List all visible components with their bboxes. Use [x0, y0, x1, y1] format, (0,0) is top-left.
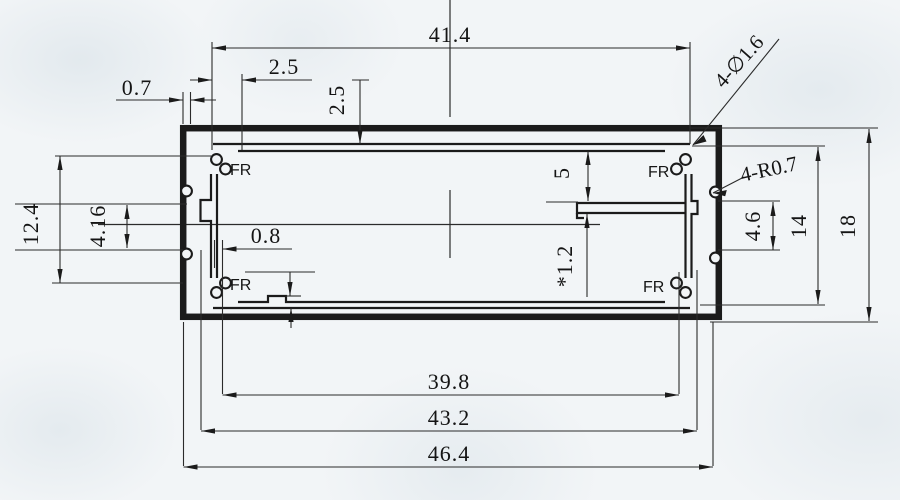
- right-inner-wall-east: [692, 174, 698, 278]
- fr-label-top-left: FR: [230, 162, 251, 179]
- dim-pcb-slot: *1.2: [552, 245, 577, 288]
- corner-boss-top-left: [211, 154, 231, 174]
- corner-boss-bottom-right: [671, 278, 691, 298]
- left-inner-wall-west: [201, 174, 212, 278]
- corner-boss-bottom-left: [211, 278, 231, 298]
- pcb-rail: [577, 203, 686, 213]
- extension-lines: [15, 42, 878, 466]
- dim-overall-height: 18: [835, 214, 860, 238]
- dim-slot-offset: 5: [549, 167, 574, 179]
- dim-left-inner-height: 12.4: [18, 203, 43, 246]
- dim-side-ribs: 4-R0.7: [738, 151, 799, 186]
- dim-wall-thickness: 0.7: [122, 75, 153, 100]
- dim-rib-offset: 4.6: [740, 211, 765, 242]
- dim-overall-width: 46.4: [428, 441, 471, 466]
- dim-inner-height: 14: [786, 214, 811, 238]
- fr-label-bottom-right: FR: [643, 279, 664, 296]
- dim-corner-holes: 4-∅1.6: [709, 30, 768, 92]
- profile-drawing: 41.4 2.5 0.7 2.5 4-∅1.6 4-R0.7 12.4 4.16…: [0, 0, 900, 500]
- dim-bottom-wall: 0.8: [251, 223, 282, 248]
- fr-label-top-right: FR: [648, 164, 669, 181]
- dim-rib-gap: 4.16: [85, 205, 110, 248]
- dim-top-inset: 2.5: [269, 54, 300, 79]
- dim-liner-width: 43.2: [428, 405, 471, 430]
- dim-top-width: 41.4: [429, 22, 472, 47]
- dimension-texts: 41.4 2.5 0.7 2.5 4-∅1.6 4-R0.7 12.4 4.16…: [18, 22, 860, 466]
- corner-boss-top-right: [671, 154, 691, 174]
- dim-top-depth: 2.5: [324, 85, 349, 116]
- bottom-liner-inner-with-tab: [238, 296, 665, 302]
- fr-label-bottom-left: FR: [230, 277, 251, 294]
- dim-opening-width: 39.8: [428, 369, 471, 394]
